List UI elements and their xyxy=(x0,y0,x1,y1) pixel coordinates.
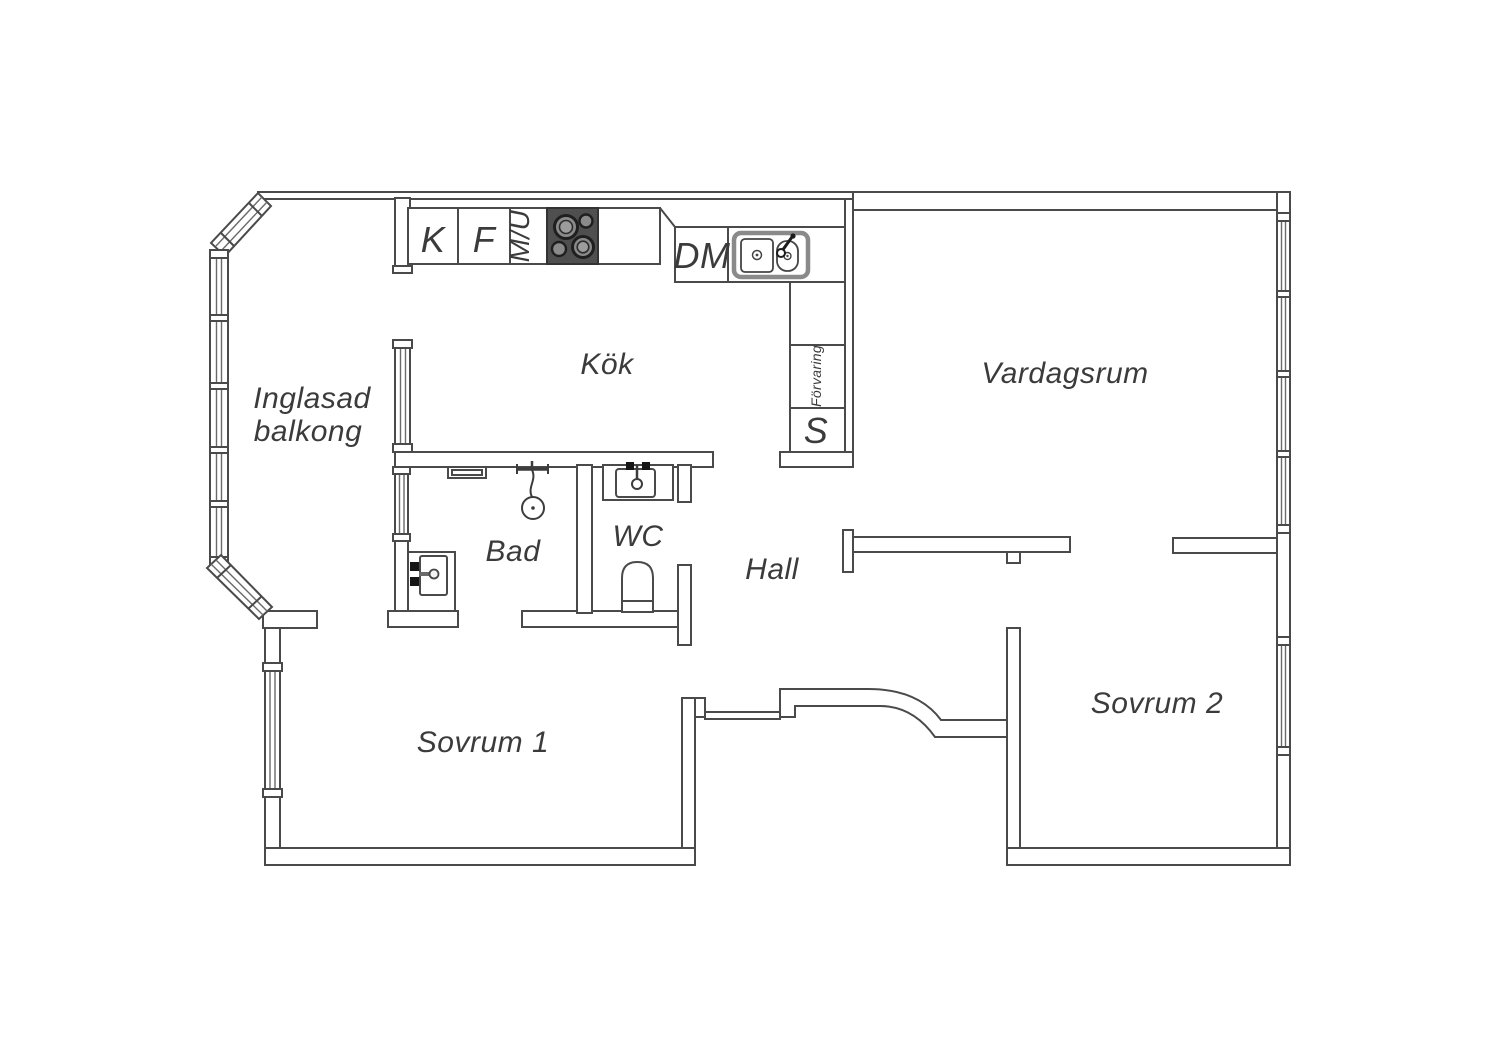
window-bedroom1 xyxy=(263,663,282,797)
wall-stub-cap xyxy=(393,266,412,273)
counter-slant xyxy=(660,208,675,227)
wall-kitchen-livingroom xyxy=(845,199,853,452)
wall-hall-livingroom xyxy=(853,537,1070,552)
wall-bedroom1-bottom xyxy=(265,848,695,865)
unit-label-fridge: K xyxy=(421,219,447,260)
kitchen-sink-icon xyxy=(734,233,808,277)
wall-bedroom2-top xyxy=(1173,538,1277,553)
wall-wc-bottom xyxy=(522,611,678,627)
room-label-kitchen: Kök xyxy=(580,348,635,381)
toilet-icon xyxy=(622,562,653,612)
wall-curved-stairwell xyxy=(780,689,1007,737)
wall-bedroom1-right xyxy=(682,698,695,865)
wall-bedroom1-left-lower xyxy=(265,797,280,848)
walls xyxy=(258,192,1290,865)
room-label-hall: Hall xyxy=(745,553,800,586)
wall-bath-left xyxy=(395,541,408,613)
wall-hall-stub xyxy=(1007,552,1020,563)
shower-icon xyxy=(516,461,549,519)
room-label-wc: WC xyxy=(613,520,664,553)
window-balcony-kitchen xyxy=(393,340,412,452)
wall-bath-bottom xyxy=(388,611,458,627)
wall-top-left xyxy=(258,192,853,199)
unit-label-cabinet-s: S xyxy=(804,410,829,451)
window-chamfer-top xyxy=(211,193,271,256)
bath-shelf-icon xyxy=(448,467,486,478)
room-label-bedroom1: Sovrum 1 xyxy=(417,726,549,759)
window-chamfer-bottom xyxy=(207,555,272,619)
wall-wc-right-lower xyxy=(678,565,691,645)
wall-wc-right-upper xyxy=(678,465,691,502)
unit-label-storage: Förvaring xyxy=(808,345,824,407)
stove-icon xyxy=(547,208,598,264)
entrance-threshold xyxy=(705,712,780,719)
room-label-balcony-line2: balkong xyxy=(254,415,363,448)
window-balcony-left xyxy=(210,250,228,565)
wall-kitchen-end-cap xyxy=(780,452,853,467)
window-bedroom2 xyxy=(1277,637,1290,755)
wall-bedroom2-left xyxy=(1007,628,1020,863)
wall-bedroom2-bottom xyxy=(1007,848,1290,865)
wall-top-right xyxy=(853,192,1277,210)
wall-balcony-bedroom1-stub xyxy=(263,611,317,628)
window-livingroom xyxy=(1277,213,1290,533)
unit-label-freezer: F xyxy=(473,219,497,260)
room-label-balcony-line1: Inglasad xyxy=(253,382,371,415)
wall-hall-cap xyxy=(843,530,853,572)
room-label-bedroom2: Sovrum 2 xyxy=(1091,687,1223,720)
wall-bath-wc xyxy=(577,465,592,613)
bath-sink-icon xyxy=(408,552,455,611)
room-label-bathroom: Bad xyxy=(486,535,542,568)
window-balcony-bathroom xyxy=(393,467,410,541)
wc-sink-icon xyxy=(603,462,673,500)
floor-plan-drawing: Inglasad balkong Kök Vardagsrum Bad WC H… xyxy=(0,0,1500,1060)
unit-label-micro-oven: M/U xyxy=(504,209,535,262)
floor-plan-page: Inglasad balkong Kök Vardagsrum Bad WC H… xyxy=(0,0,1500,1060)
room-label-livingroom: Vardagsrum xyxy=(981,357,1148,390)
unit-label-dishwasher: DM xyxy=(674,235,731,276)
kitchen-counter-side xyxy=(790,282,845,345)
